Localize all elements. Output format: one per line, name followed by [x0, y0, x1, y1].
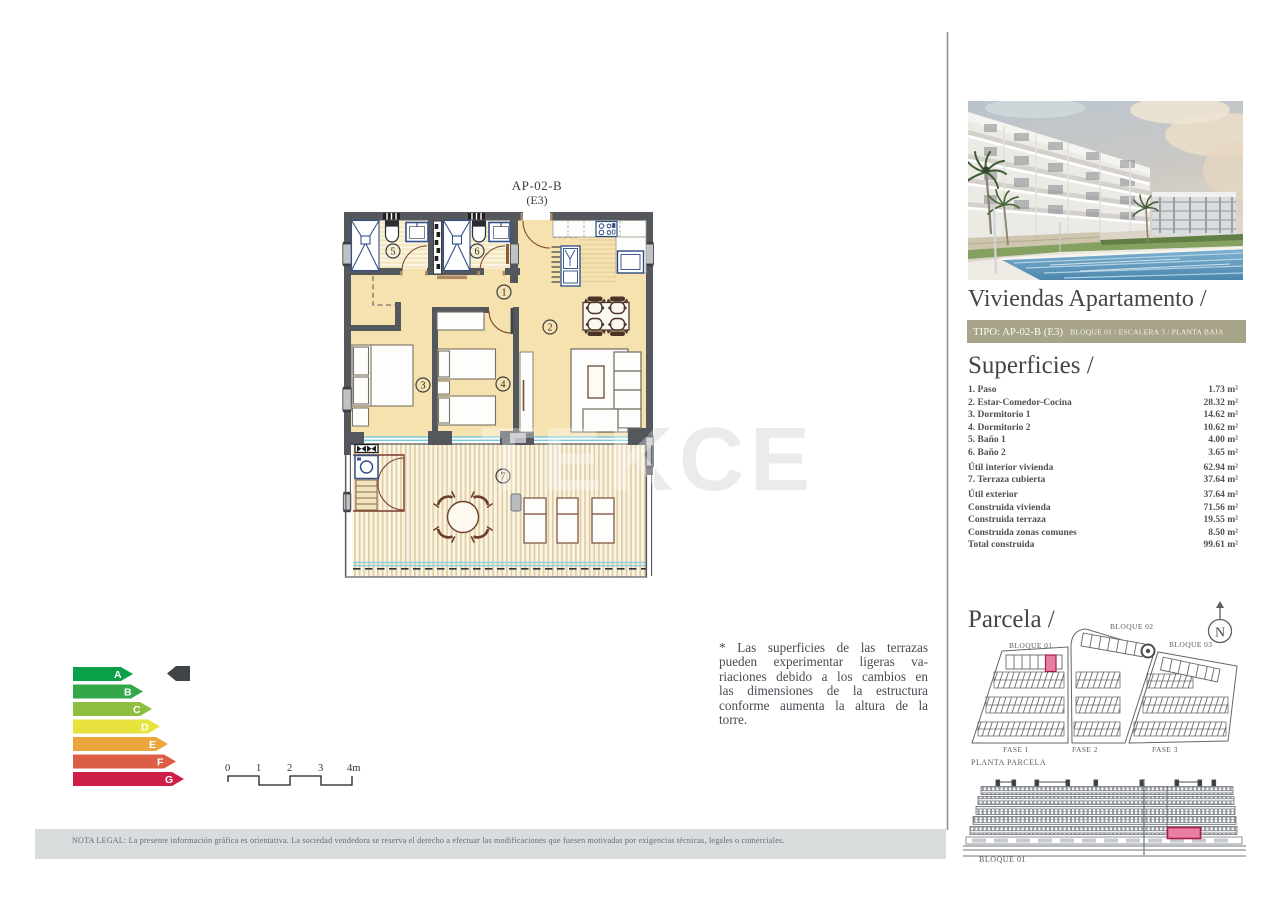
svg-text:BLOQUE 03: BLOQUE 03 — [1169, 640, 1212, 649]
svg-text:FASE 3: FASE 3 — [1152, 745, 1178, 754]
svg-text:D: D — [141, 722, 149, 734]
svg-text:AP-02-B: AP-02-B — [512, 178, 562, 193]
svg-text:B: B — [124, 687, 132, 699]
svg-text:BLOQUE 01: BLOQUE 01 — [979, 855, 1026, 864]
svg-text:E: E — [149, 739, 156, 751]
svg-text:3: 3 — [318, 763, 323, 774]
svg-text:6: 6 — [475, 247, 480, 258]
svg-text:F: F — [157, 757, 164, 769]
svg-text:BLOQUE 02: BLOQUE 02 — [1110, 622, 1153, 631]
svg-text:FASE 2: FASE 2 — [1072, 745, 1098, 754]
svg-text:0: 0 — [225, 763, 230, 774]
svg-text:1: 1 — [256, 763, 261, 774]
svg-text:BLOQUE 01: BLOQUE 01 — [1009, 641, 1052, 650]
svg-text:(E3): (E3) — [526, 193, 547, 207]
svg-text:NOTA LEGAL: La presente inform: NOTA LEGAL: La presente información gráf… — [72, 836, 785, 845]
svg-text:A: A — [114, 669, 122, 681]
svg-text:TIPO: AP-02-B (E3): TIPO: AP-02-B (E3) — [973, 326, 1063, 338]
svg-text:4: 4 — [501, 380, 506, 391]
svg-text:3: 3 — [421, 381, 426, 392]
svg-text:2: 2 — [548, 323, 553, 334]
svg-text:N: N — [1215, 626, 1225, 641]
svg-text:1: 1 — [502, 288, 507, 299]
svg-text:BLOQUE 01 / ESCALERA 3 / PLAN: BLOQUE 01 / ESCALERA 3 / PLANTA BAJA — [1070, 328, 1224, 337]
svg-text:2: 2 — [287, 763, 292, 774]
svg-text:4m: 4m — [347, 763, 360, 774]
svg-text:FASE 1: FASE 1 — [1003, 745, 1029, 754]
svg-text:5: 5 — [391, 247, 396, 258]
svg-text:PLANTA PARCELA: PLANTA PARCELA — [971, 758, 1046, 767]
svg-text:C: C — [133, 704, 141, 716]
svg-text:G: G — [165, 774, 173, 786]
